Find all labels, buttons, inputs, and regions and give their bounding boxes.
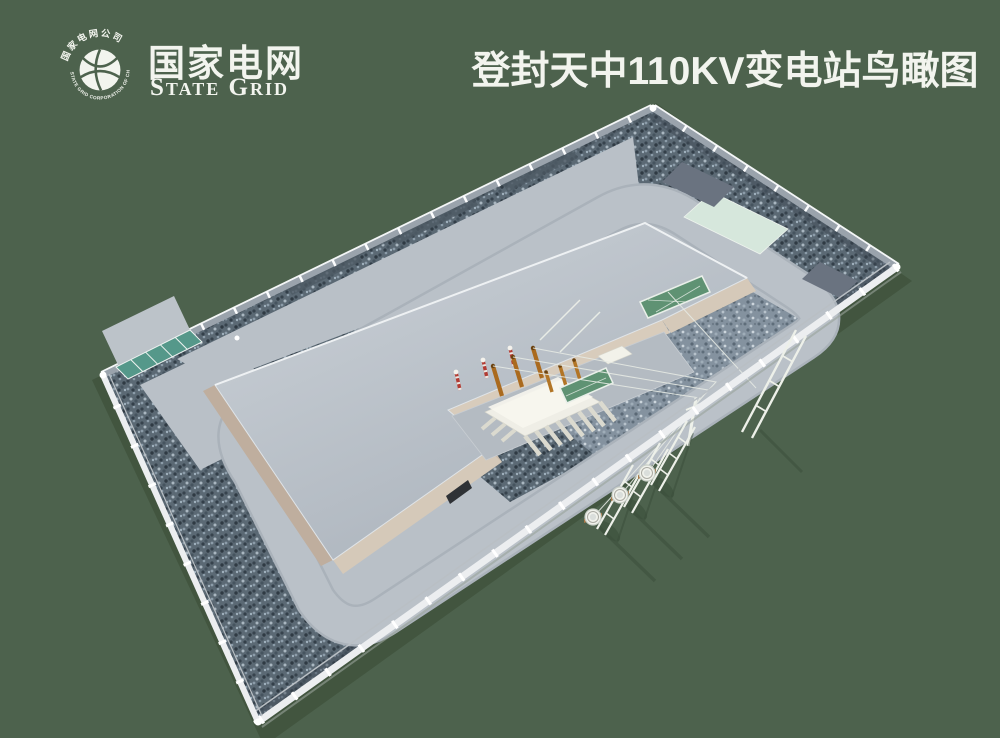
state-grid-emblem: 国家电网公司 STATE GRID CORPORATION OF CHINA (54, 24, 146, 116)
logo-name-english: State Grid (150, 74, 289, 102)
gate-lamp (235, 336, 240, 341)
slide: 国家电网公司 STATE GRID CORPORATION OF CHINA 国… (0, 0, 1000, 738)
terminal-pole (638, 465, 656, 481)
terminal-pole (611, 487, 629, 503)
page-title: 登封天中110KV变电站鸟瞰图 (470, 40, 980, 96)
terminal-pole (584, 509, 602, 525)
substation-rendering (0, 0, 1000, 738)
